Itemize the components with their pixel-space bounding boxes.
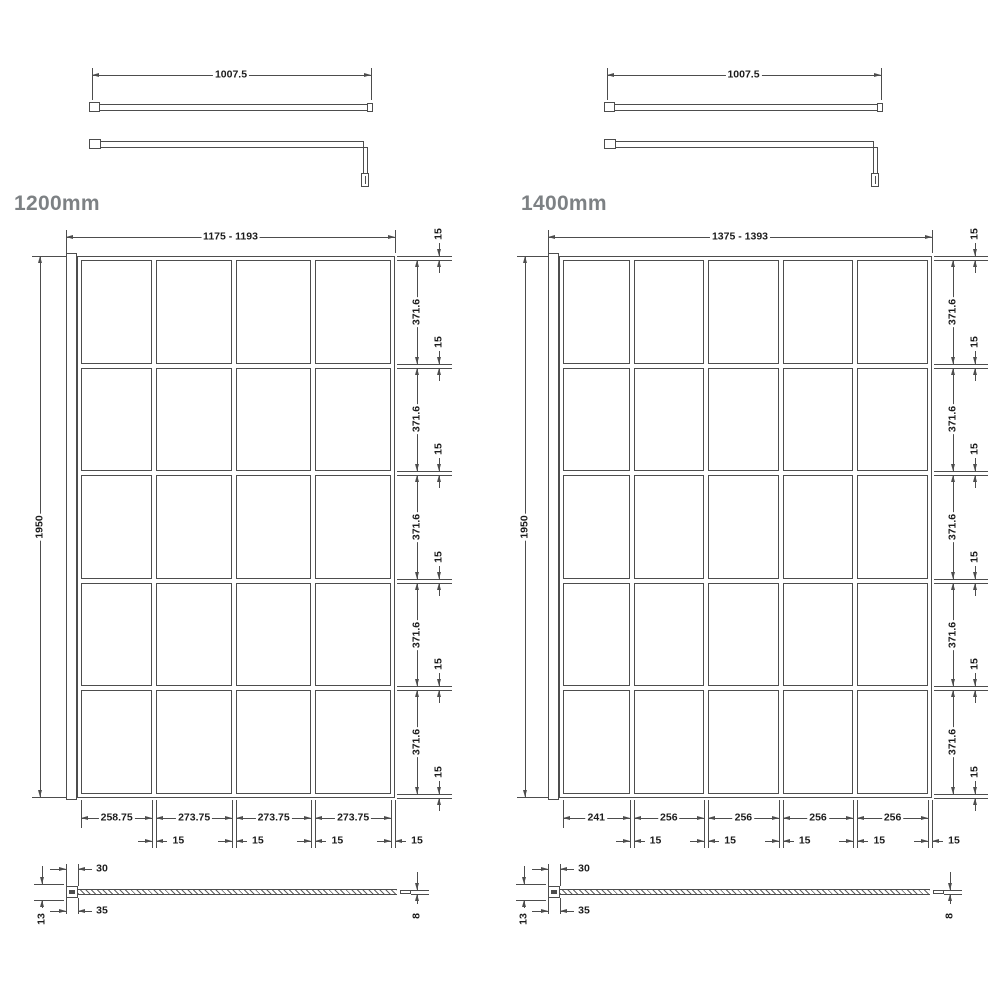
arrowhead-up: [948, 894, 952, 901]
witness-line: [563, 800, 564, 828]
support-bar-length-label: 1007.5: [725, 69, 761, 80]
arrowhead-right: [772, 816, 779, 820]
arrowhead-up: [415, 690, 419, 697]
witness-line: [932, 230, 933, 253]
arrowhead-down: [973, 357, 977, 364]
grid-cell: [857, 368, 928, 472]
arrowhead-right: [921, 839, 928, 843]
grid-cell: [708, 583, 779, 687]
grid-cell: [156, 690, 232, 794]
column-width-label: 256: [658, 812, 680, 823]
arrowhead-left: [857, 816, 864, 820]
arrowhead-down: [437, 787, 441, 794]
witness-line: [934, 583, 988, 584]
arrowhead-left: [236, 839, 243, 843]
grid-cell: [708, 260, 779, 364]
frame-gap-label: 15: [969, 226, 980, 242]
arrowhead-up: [415, 475, 419, 482]
grid-cell: [315, 583, 391, 687]
arrowhead-left: [81, 816, 88, 820]
witness-line: [66, 230, 67, 253]
grid-cell: [315, 260, 391, 364]
channel-depth-label: 13: [518, 911, 529, 927]
arrowhead-down: [522, 877, 526, 884]
glass-in-channel: [551, 890, 557, 894]
support-bar-wall-bracket: [89, 102, 100, 112]
grid-cell: [634, 260, 705, 364]
support-bar: [90, 104, 372, 111]
witness-line: [548, 230, 549, 253]
column-gap-label: 15: [946, 835, 962, 846]
arrowhead-down: [973, 464, 977, 471]
witness-line: [934, 256, 988, 257]
witness-line: [34, 884, 64, 885]
grid-cell: [315, 475, 391, 579]
column-gap-label: 15: [409, 835, 425, 846]
arrowhead-right: [304, 816, 311, 820]
arrowhead-down: [40, 877, 44, 884]
technical-drawing-canvas: 1200mm 1400mm 1007.51175 - 11931950371.6…: [0, 0, 1000, 1000]
arrowhead-right: [874, 73, 881, 77]
row-height-label: 371.6: [947, 727, 958, 757]
witness-line: [397, 475, 452, 476]
arrowhead-right: [846, 816, 853, 820]
witness-line: [516, 884, 546, 885]
witness-line: [934, 686, 988, 687]
column-width-label: 256: [882, 812, 904, 823]
grid-cell: [81, 583, 152, 687]
arrowhead-down: [948, 883, 952, 890]
arrowhead-down: [415, 357, 419, 364]
support-bar-length-label: 1007.5: [213, 69, 249, 80]
glass-panel-section: [78, 889, 397, 895]
arrowhead-right: [225, 816, 232, 820]
arrowhead-right: [59, 909, 66, 913]
arrowhead-left: [395, 839, 402, 843]
grid-cell: [81, 368, 152, 472]
arrowhead-left: [66, 235, 73, 239]
row-height-label: 371.6: [411, 404, 422, 434]
witness-line: [397, 686, 452, 687]
arrowhead-left: [932, 839, 939, 843]
grid-cell: [708, 368, 779, 472]
grid-cell: [783, 260, 854, 364]
bracket-width-bottom-label: 35: [94, 905, 110, 916]
witness-line: [928, 800, 929, 848]
grid-cell: [634, 583, 705, 687]
grid-cell: [857, 690, 928, 794]
column-gap-label: 15: [171, 835, 187, 846]
arrowhead-down: [951, 787, 955, 794]
angled-support-clamp-detail: [875, 176, 876, 184]
row-height-label: 371.6: [947, 404, 958, 434]
arrowhead-left: [783, 839, 790, 843]
column-width-label: 258.75: [99, 812, 135, 823]
arrowhead-left: [857, 839, 864, 843]
frame-gap-label: 15: [433, 441, 444, 457]
arrowhead-left: [560, 867, 567, 871]
column-width-label: 256: [733, 812, 755, 823]
frame-gap-label: 15: [433, 549, 444, 565]
arrowhead-up: [415, 583, 419, 590]
glass-edge-section: [933, 890, 944, 894]
arrowhead-down: [973, 679, 977, 686]
column-gap-label: 15: [871, 835, 887, 846]
row-height-label: 371.6: [947, 619, 958, 649]
witness-line: [934, 364, 988, 365]
arrowhead-left: [315, 839, 322, 843]
grid-cell: [783, 583, 854, 687]
arrowhead-left: [708, 816, 715, 820]
grid-cell: [634, 368, 705, 472]
arrowhead-right: [623, 816, 630, 820]
glass-in-channel: [69, 890, 75, 894]
arrowhead-right: [623, 839, 630, 843]
witness-line: [232, 800, 233, 848]
angled-support-clamp-detail: [365, 176, 366, 184]
arrowhead-up: [951, 690, 955, 697]
grid-cell: [81, 690, 152, 794]
witness-line: [397, 471, 452, 472]
frame-gap-label: 15: [969, 334, 980, 350]
arrowhead-up: [951, 583, 955, 590]
witness-line: [853, 800, 854, 848]
panel-height-label: 1950: [519, 513, 530, 540]
grid-cell: [236, 260, 312, 364]
arrowhead-up: [522, 900, 526, 907]
arrowhead-right: [846, 839, 853, 843]
arrowhead-right: [921, 816, 928, 820]
arrowhead-left: [607, 73, 614, 77]
arrowhead-down: [951, 357, 955, 364]
witness-line: [516, 900, 546, 901]
angled-support-bar: [91, 141, 364, 148]
arrowhead-up: [437, 690, 441, 697]
arrowhead-down: [973, 787, 977, 794]
frame-gap-label: 15: [969, 657, 980, 673]
grid-cell: [634, 690, 705, 794]
arrowhead-right: [697, 816, 704, 820]
arrowhead-down: [973, 572, 977, 579]
arrowhead-down: [437, 572, 441, 579]
column-width-label: 273.75: [256, 812, 292, 823]
witness-line: [517, 797, 548, 798]
panel-height-label: 1950: [34, 513, 45, 540]
witness-line: [152, 800, 153, 848]
arrowhead-right: [384, 816, 391, 820]
witness-line: [32, 797, 66, 798]
arrowhead-left: [560, 909, 567, 913]
arrowhead-left: [236, 816, 243, 820]
arrowhead-down: [415, 464, 419, 471]
column-width-label: 256: [807, 812, 829, 823]
grid-cell: [156, 583, 232, 687]
arrowhead-down: [523, 790, 527, 797]
glass-thickness-label: 8: [944, 911, 955, 921]
witness-line: [397, 794, 452, 795]
grid-cell: [563, 690, 630, 794]
column-gap-label: 15: [722, 835, 738, 846]
arrowhead-up: [973, 260, 977, 267]
arrowhead-down: [973, 249, 977, 256]
arrowhead-left: [708, 839, 715, 843]
support-bar-wall-bracket: [604, 102, 615, 112]
witness-line: [66, 898, 67, 914]
arrowhead-down: [415, 572, 419, 579]
witness-line: [397, 364, 452, 365]
arrowhead-right: [59, 867, 66, 871]
arrowhead-right: [772, 839, 779, 843]
row-height-label: 371.6: [411, 297, 422, 327]
arrowhead-right: [697, 839, 704, 843]
arrowhead-down: [437, 357, 441, 364]
glass-panel-section: [560, 889, 930, 895]
arrowhead-up: [437, 368, 441, 375]
arrowhead-right: [384, 839, 391, 843]
arrowhead-up: [523, 256, 527, 263]
arrowhead-up: [973, 475, 977, 482]
arrowhead-up: [415, 368, 419, 375]
panel-width-label: 1175 - 1193: [201, 231, 260, 242]
arrowhead-left: [783, 816, 790, 820]
witness-line: [779, 800, 780, 848]
arrowhead-right: [541, 909, 548, 913]
frame-gap-label: 15: [969, 441, 980, 457]
arrowhead-down: [951, 464, 955, 471]
arrowhead-left: [634, 839, 641, 843]
arrowhead-up: [437, 475, 441, 482]
grid-cell: [236, 690, 312, 794]
column-gap-label: 15: [648, 835, 664, 846]
angled-support-wall-bracket: [89, 139, 101, 149]
frame-gap-label: 15: [433, 657, 444, 673]
row-height-label: 371.6: [411, 727, 422, 757]
grid-cell: [236, 475, 312, 579]
arrowhead-down: [437, 464, 441, 471]
grid-cell: [81, 260, 152, 364]
grid-cell: [236, 583, 312, 687]
arrowhead-up: [437, 583, 441, 590]
arrowhead-up: [951, 260, 955, 267]
arrowhead-up: [415, 260, 419, 267]
witness-line: [391, 800, 392, 848]
panel-width-label: 1375 - 1393: [710, 231, 770, 242]
arrowhead-down: [415, 679, 419, 686]
grid-cell: [563, 475, 630, 579]
arrowhead-up: [951, 475, 955, 482]
arrowhead-left: [78, 867, 85, 871]
support-bar-glass-clamp: [877, 103, 883, 112]
support-bar: [605, 104, 882, 111]
grid-cell: [563, 260, 630, 364]
witness-line: [934, 260, 988, 261]
arrowhead-left: [548, 235, 555, 239]
angled-support-bar: [606, 141, 874, 148]
grid-cell: [708, 690, 779, 794]
grid-cell: [315, 368, 391, 472]
arrowhead-right: [225, 839, 232, 843]
grid-cell: [857, 260, 928, 364]
arrowhead-up: [973, 690, 977, 697]
arrowhead-up: [437, 798, 441, 805]
arrowhead-up: [437, 260, 441, 267]
glass-thickness-label: 8: [411, 911, 422, 921]
support-bar-glass-clamp: [367, 103, 373, 112]
grid-cell: [563, 368, 630, 472]
grid-cell: [236, 368, 312, 472]
drawing-layer: 1007.51175 - 11931950371.6371.6371.6371.…: [0, 0, 1000, 1000]
arrowhead-up: [40, 900, 44, 907]
arrowhead-right: [304, 839, 311, 843]
grid-cell: [156, 368, 232, 472]
witness-line: [934, 798, 988, 799]
witness-line: [944, 890, 962, 891]
channel-depth-label: 13: [36, 911, 47, 927]
arrowhead-down: [415, 787, 419, 794]
arrowhead-left: [156, 816, 163, 820]
row-height-label: 371.6: [947, 297, 958, 327]
arrowhead-left: [78, 909, 85, 913]
witness-line: [397, 256, 452, 257]
arrowhead-up: [415, 894, 419, 901]
witness-line: [81, 800, 82, 828]
witness-line: [397, 579, 452, 580]
row-height-label: 371.6: [411, 512, 422, 542]
frame-gap-label: 15: [433, 764, 444, 780]
column-width-label: 273.75: [176, 812, 212, 823]
grid-cell: [156, 260, 232, 364]
arrowhead-left: [156, 839, 163, 843]
wall-profile: [66, 253, 77, 800]
row-height-label: 371.6: [947, 512, 958, 542]
witness-line: [934, 475, 988, 476]
grid-cell: [708, 475, 779, 579]
grid-cell: [857, 583, 928, 687]
arrowhead-left: [563, 816, 570, 820]
arrowhead-up: [951, 368, 955, 375]
glass-edge-section: [400, 890, 411, 894]
witness-line: [395, 230, 396, 253]
arrowhead-down: [38, 790, 42, 797]
arrowhead-right: [388, 235, 395, 239]
arrowhead-left: [315, 816, 322, 820]
witness-line: [34, 900, 64, 901]
column-width-label: 273.75: [335, 812, 371, 823]
angled-support-wall-bracket: [604, 139, 616, 149]
grid-cell: [783, 475, 854, 579]
frame-gap-label: 15: [969, 549, 980, 565]
arrowhead-down: [951, 572, 955, 579]
arrowhead-left: [92, 73, 99, 77]
witness-line: [934, 471, 988, 472]
frame-gap-label: 15: [433, 226, 444, 242]
grid-cell: [315, 690, 391, 794]
column-gap-label: 15: [250, 835, 266, 846]
witness-line: [934, 368, 988, 369]
witness-line: [66, 864, 67, 886]
bracket-width-top-label: 30: [576, 863, 592, 874]
witness-line: [548, 864, 549, 886]
frame-gap-label: 15: [433, 334, 444, 350]
grid-cell: [81, 475, 152, 579]
arrowhead-down: [415, 883, 419, 890]
column-width-label: 241: [585, 812, 607, 823]
arrowhead-up: [973, 798, 977, 805]
witness-line: [934, 579, 988, 580]
arrowhead-up: [973, 368, 977, 375]
arrowhead-up: [973, 583, 977, 590]
witness-line: [704, 800, 705, 848]
grid-cell: [634, 475, 705, 579]
witness-line: [397, 368, 452, 369]
arrowhead-down: [437, 679, 441, 686]
witness-line: [934, 690, 988, 691]
arrowhead-right: [925, 235, 932, 239]
arrowhead-down: [951, 679, 955, 686]
witness-line: [934, 794, 988, 795]
witness-line: [397, 798, 452, 799]
witness-line: [630, 800, 631, 848]
witness-line: [397, 690, 452, 691]
grid-cell: [156, 475, 232, 579]
arrowhead-left: [634, 816, 641, 820]
witness-line: [371, 68, 372, 100]
arrowhead-right: [145, 816, 152, 820]
grid-cell: [783, 690, 854, 794]
witness-line: [548, 898, 549, 914]
column-gap-label: 15: [797, 835, 813, 846]
wall-profile: [548, 253, 559, 800]
bracket-width-top-label: 30: [94, 863, 110, 874]
frame-gap-label: 15: [969, 764, 980, 780]
witness-line: [311, 800, 312, 848]
witness-line: [881, 68, 882, 100]
arrowhead-right: [541, 867, 548, 871]
witness-line: [397, 260, 452, 261]
row-height-label: 371.6: [411, 619, 422, 649]
arrowhead-down: [437, 249, 441, 256]
column-gap-label: 15: [330, 835, 346, 846]
grid-cell: [783, 368, 854, 472]
grid-cell: [857, 475, 928, 579]
bracket-width-bottom-label: 35: [576, 905, 592, 916]
arrowhead-right: [364, 73, 371, 77]
witness-line: [411, 890, 429, 891]
arrowhead-right: [145, 839, 152, 843]
grid-cell: [563, 583, 630, 687]
arrowhead-up: [38, 256, 42, 263]
witness-line: [397, 583, 452, 584]
